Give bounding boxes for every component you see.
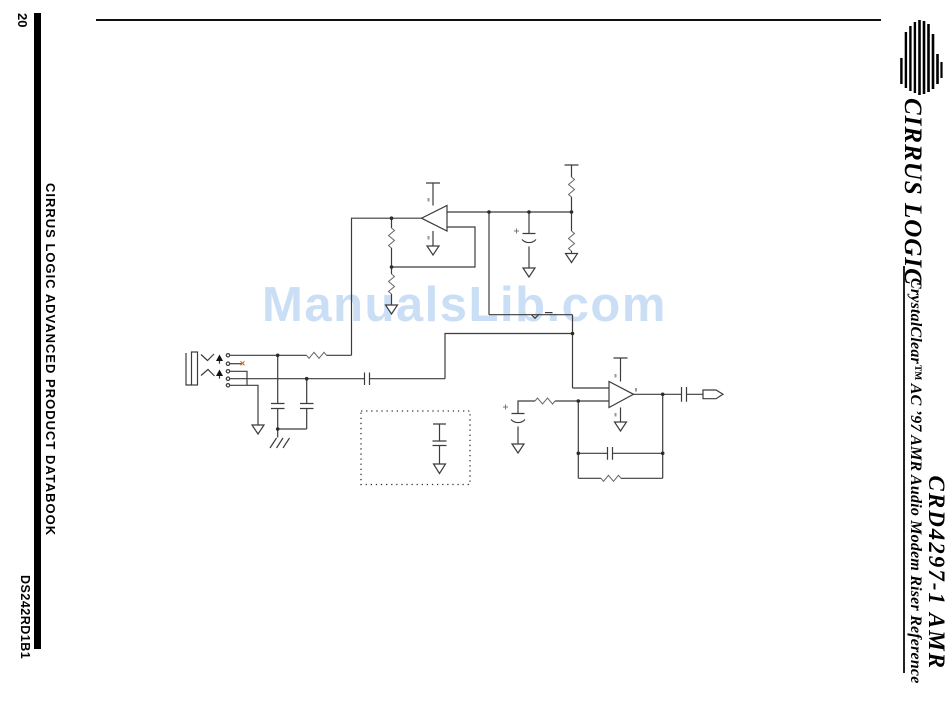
plus-mark bbox=[503, 405, 508, 410]
resistor bbox=[535, 398, 555, 404]
opamp-1 bbox=[422, 183, 448, 255]
capacitor bbox=[433, 441, 447, 446]
dotted-option-box bbox=[361, 411, 470, 485]
opamp1-output-net bbox=[352, 218, 422, 355]
capacitor bbox=[271, 355, 285, 429]
capacitor bbox=[682, 387, 687, 402]
pin-mark bbox=[615, 413, 617, 417]
output-port-icon bbox=[703, 390, 723, 399]
jack-pin bbox=[226, 377, 229, 380]
power-rail-icon bbox=[565, 165, 579, 177]
opamp2-output bbox=[634, 387, 724, 402]
jack-pin bbox=[226, 354, 229, 357]
pin-mark bbox=[615, 374, 617, 378]
schematic-figure bbox=[0, 0, 950, 721]
pin-mark bbox=[428, 236, 430, 240]
capacitor bbox=[608, 447, 613, 460]
ground-icon bbox=[615, 422, 627, 431]
opamp2-input-rc bbox=[503, 398, 609, 453]
capacitor bbox=[365, 373, 370, 386]
ground-icon bbox=[427, 246, 439, 255]
ground-icon bbox=[252, 425, 264, 434]
datasheet-page: 20 CIRRUS LOGIC ADVANCED PRODUCT DATABOO… bbox=[0, 0, 950, 721]
polarized-capacitor-1 bbox=[514, 212, 536, 277]
jack-pin bbox=[226, 384, 229, 387]
resistor bbox=[569, 177, 575, 197]
resistor bbox=[569, 231, 575, 251]
jack-pin bbox=[226, 362, 229, 365]
ground-icon bbox=[434, 464, 446, 474]
pin-mark bbox=[635, 388, 637, 392]
mid-routing-net bbox=[445, 212, 609, 388]
resistor bbox=[389, 274, 395, 294]
pin-mark bbox=[428, 198, 430, 202]
switch-arrow-icon bbox=[216, 355, 223, 362]
jack-contact bbox=[201, 354, 214, 361]
ground-icon bbox=[512, 444, 524, 453]
jack-pin bbox=[226, 370, 229, 373]
audio-jack bbox=[186, 352, 230, 387]
ground-icon bbox=[566, 254, 578, 263]
capacitor bbox=[300, 379, 314, 429]
resistor bbox=[601, 475, 621, 481]
opamp-2 bbox=[609, 358, 637, 431]
chassis-ground-icon bbox=[270, 438, 290, 448]
resistor bbox=[307, 352, 327, 358]
plus-mark bbox=[514, 229, 519, 234]
switch-arrow-icon bbox=[216, 370, 223, 377]
power-rail-icon bbox=[426, 183, 440, 206]
ground-icon bbox=[523, 268, 535, 277]
power-rail-icon bbox=[614, 358, 628, 382]
resistor bbox=[389, 228, 395, 248]
jack-contact bbox=[201, 370, 215, 377]
jack-wiring bbox=[230, 352, 445, 448]
ground-icon bbox=[386, 305, 398, 314]
junction-dots bbox=[276, 210, 665, 455]
opamp2-feedback bbox=[578, 394, 662, 481]
